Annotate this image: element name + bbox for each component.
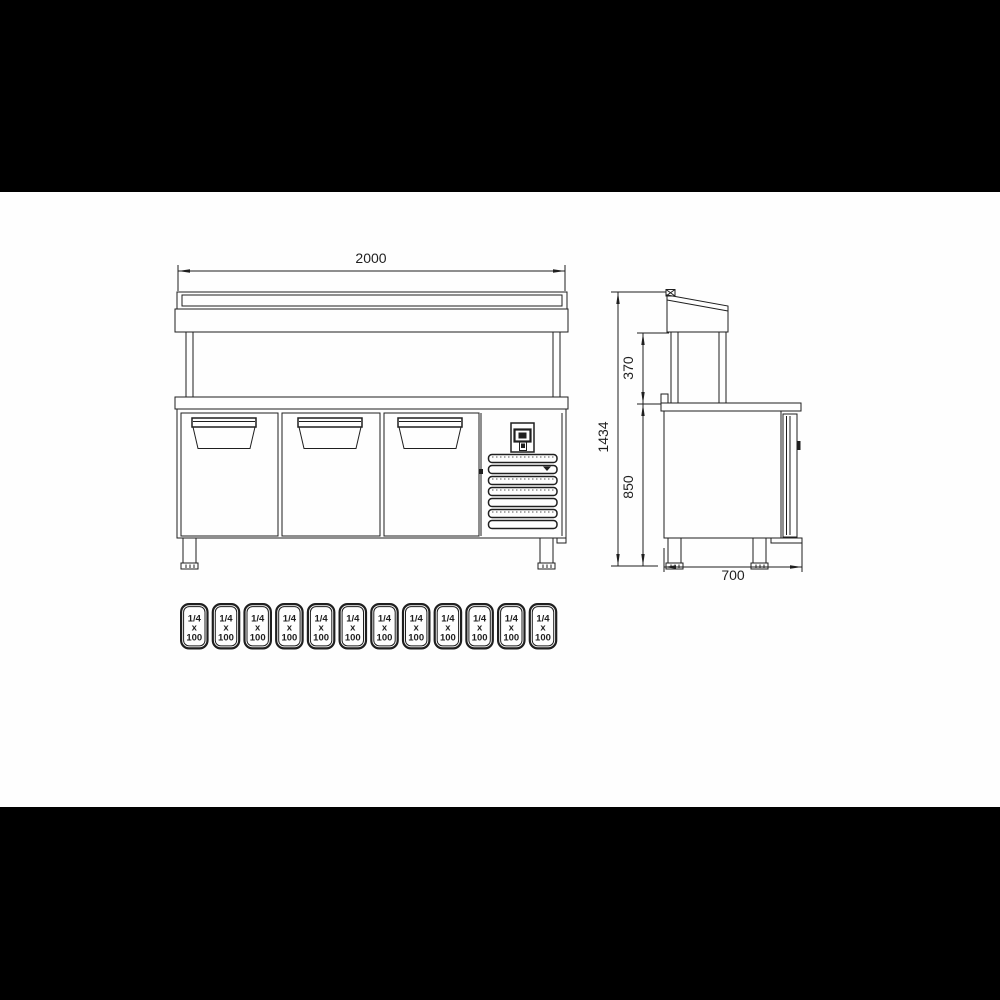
door-3-handle [398, 418, 462, 449]
gn-pan: 1/4 x 100 [498, 604, 524, 648]
gn-pan: 1/4 x 100 [530, 604, 556, 648]
door-1-handle [192, 418, 256, 449]
gn-pan: 1/4 x 100 [213, 604, 239, 648]
dimension-depth-label: 700 [721, 567, 745, 583]
front-view-legs [181, 538, 566, 569]
side-view-legs [666, 538, 768, 569]
dimension-body-height-label: 850 [620, 475, 636, 499]
front-view: 2000 [175, 250, 568, 569]
pan-size-label: 100 [186, 633, 202, 644]
side-counter-top [661, 394, 801, 411]
side-canopy [666, 290, 728, 333]
side-view: 1434 370 850 [595, 290, 802, 584]
pan-size-label: 100 [281, 633, 297, 644]
gn-pan: 1/4 x 100 [435, 604, 461, 648]
gn-pans-row: 1/4 x 100 1/4 x 100 1/4 x 100 [181, 604, 556, 648]
gn-pan: 1/4 x 100 [466, 604, 492, 648]
dimension-canopy-height-label: 370 [620, 356, 636, 380]
technical-drawing: 2000 [0, 192, 1000, 807]
door-2-handle [298, 418, 362, 449]
side-canopy-posts [671, 332, 726, 403]
pan-size-label: 100 [377, 633, 393, 644]
side-door [771, 414, 802, 543]
gn-pan: 1/4 x 100 [276, 604, 302, 648]
gn-pan: 1/4 x 100 [340, 604, 366, 648]
counter-top [175, 397, 568, 409]
thermostat-control [511, 423, 534, 452]
hinge-mark [480, 469, 484, 474]
dimension-body-height: 850 [620, 404, 661, 566]
gn-pan: 1/4 x 100 [181, 604, 207, 648]
side-body [664, 411, 781, 538]
dimension-canopy-height: 370 [620, 333, 669, 404]
drain-marker [543, 467, 551, 472]
pan-size-label: 100 [408, 633, 424, 644]
page-background: 2000 [0, 0, 1000, 1000]
dimension-width: 2000 [178, 250, 565, 291]
kick-strip [771, 538, 802, 543]
gn-pan: 1/4 x 100 [371, 604, 397, 648]
pan-size-label: 100 [218, 633, 234, 644]
canopy-posts [186, 332, 560, 397]
canopy-glass [177, 292, 567, 309]
drawing-canvas: 2000 [0, 192, 1000, 807]
dimension-depth: 700 [664, 540, 802, 583]
corner-bracket [557, 538, 566, 543]
pan-size-label: 100 [250, 633, 266, 644]
pan-size-label: 100 [440, 633, 456, 644]
pan-size-label: 100 [313, 633, 329, 644]
dimension-width-label: 2000 [355, 250, 386, 266]
dimension-total-height-label: 1434 [595, 421, 611, 452]
gn-pan: 1/4 x 100 [245, 604, 271, 648]
pan-size-label: 100 [472, 633, 488, 644]
pan-size-label: 100 [535, 633, 551, 644]
gn-pan: 1/4 x 100 [308, 604, 334, 648]
door-3 [384, 413, 479, 536]
canopy-fascia [175, 309, 568, 332]
door-1 [181, 413, 278, 536]
vent-louvers [489, 455, 558, 529]
pan-size-label: 100 [503, 633, 519, 644]
pan-size-label: 100 [345, 633, 361, 644]
gn-pan: 1/4 x 100 [403, 604, 429, 648]
side-door-handle [797, 441, 801, 450]
door-2 [282, 413, 380, 536]
